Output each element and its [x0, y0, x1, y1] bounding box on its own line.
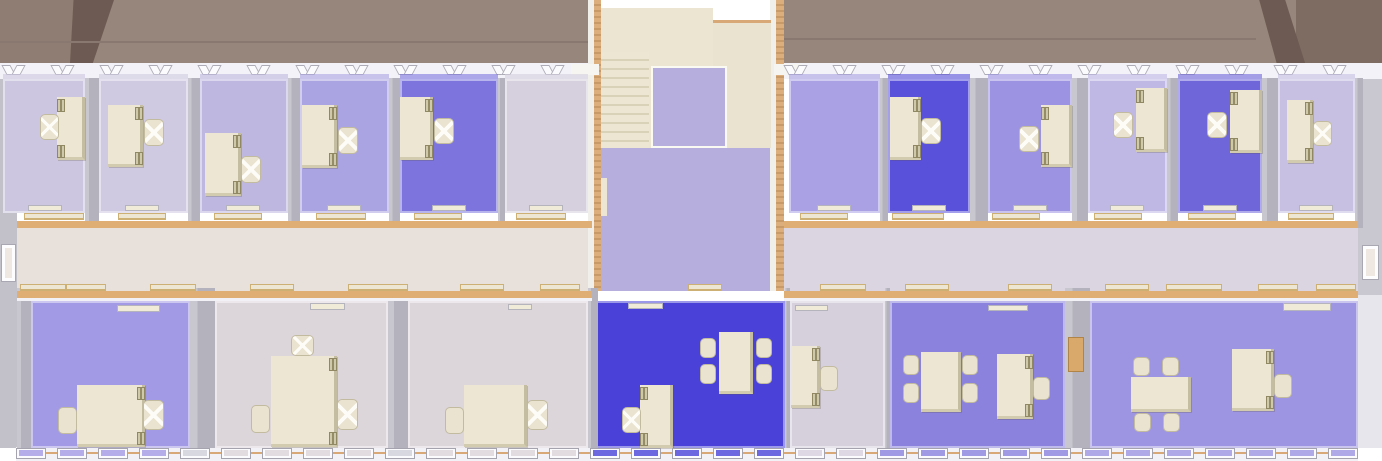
stairwell-door[interactable]: [601, 178, 607, 216]
corridor-south-doors-door-11[interactable]: [1105, 284, 1149, 291]
window-bottom-glass: [306, 450, 330, 456]
top-partition-4: [498, 78, 505, 228]
room-south-6-ceiling-lamp[interactable]: [988, 305, 1028, 311]
office-north-3-equipment-1[interactable]: [233, 135, 241, 148]
window-bottom-glass: [19, 450, 43, 456]
office-north-12-equipment-1[interactable]: [1305, 102, 1313, 115]
room-south-1-table[interactable]: [77, 385, 145, 447]
corridor-north-doors-door-8[interactable]: [992, 213, 1040, 220]
corridor-north-doors-door-0[interactable]: [24, 213, 84, 220]
room-south-5-ceiling-lamp[interactable]: [795, 305, 828, 311]
window-bottom-glass: [1167, 450, 1191, 456]
stair-landing: [601, 148, 770, 291]
window-bottom-glass: [511, 450, 535, 456]
room-south-4-chair-2[interactable]: [700, 364, 716, 384]
office-north-1-equipment-2[interactable]: [57, 145, 65, 158]
bottom-partition-5: [885, 288, 890, 448]
room-office-north-6[interactable]: [505, 79, 588, 213]
floor-plan-canvas: [0, 0, 1382, 461]
window-bottom-glass: [1044, 450, 1068, 456]
stairwell-wall-right-brick: [776, 0, 784, 291]
office-north-6-ceiling-lamp[interactable]: [529, 205, 563, 211]
room-south-3-table[interactable]: [464, 385, 527, 447]
room-south-5-equipment-1[interactable]: [812, 348, 820, 361]
room-south-6-chair-2[interactable]: [903, 383, 919, 403]
corridor-north-doors-door-4[interactable]: [414, 213, 462, 220]
room-south-4-chair-4[interactable]: [756, 364, 772, 384]
corridor-west-floor: [17, 228, 592, 291]
stairwell-wall-left-brick: [594, 0, 601, 291]
window-bottom-glass: [470, 450, 494, 456]
office-north-8-office-chair-1[interactable]: [921, 118, 941, 144]
office-north-4-ceiling-lamp[interactable]: [327, 205, 361, 211]
window-bottom-glass: [265, 450, 289, 456]
corridor-south-doors-base-1: [784, 298, 1358, 301]
room-south-2-ceiling-lamp[interactable]: [310, 303, 345, 310]
office-north-10-equipment-2[interactable]: [1136, 137, 1144, 150]
room-south-6-chair-4[interactable]: [962, 383, 978, 403]
room-south-4-equipment-1[interactable]: [640, 387, 648, 400]
corridor-north-doors-door-6[interactable]: [800, 213, 848, 220]
office-north-7-ceiling-lamp[interactable]: [817, 205, 851, 211]
office-north-11-office-chair-1[interactable]: [1207, 112, 1227, 138]
top-partition-1: [188, 78, 200, 228]
office-north-8-equipment-1[interactable]: [913, 99, 921, 112]
corridor-south-doors-door-13[interactable]: [1258, 284, 1298, 291]
office-north-10-equipment-1[interactable]: [1136, 90, 1144, 103]
window-bottom-glass: [142, 450, 166, 456]
office-north-5-equipment-2[interactable]: [425, 145, 433, 158]
corridor-south-doors-door-3[interactable]: [250, 284, 294, 291]
room-room-south-6[interactable]: [890, 301, 1065, 448]
window-bottom-glass: [1208, 450, 1232, 456]
window-top-glass-office-north-2: [99, 74, 188, 79]
window-bottom-glass: [921, 450, 945, 456]
corridor-south-doors-door-10[interactable]: [1008, 284, 1052, 291]
office-north-4-equipment-2[interactable]: [329, 153, 337, 166]
room-room-south-7[interactable]: [1090, 301, 1358, 448]
office-north-2-ceiling-lamp[interactable]: [125, 205, 159, 211]
room-south-4-chair-3[interactable]: [756, 338, 772, 358]
office-north-4-equipment-1[interactable]: [329, 107, 337, 120]
window-bottom-glass: [880, 450, 904, 456]
stairwell-void: [651, 66, 727, 148]
window-bottom-glass: [347, 450, 371, 456]
corridor-north-doors-door-5[interactable]: [516, 213, 566, 220]
window-bottom-glass: [60, 450, 84, 456]
room-south-1-equipment-2[interactable]: [137, 432, 145, 445]
window-bottom-glass: [1249, 450, 1273, 456]
office-north-2-equipment-2[interactable]: [135, 152, 143, 165]
office-north-10-ceiling-lamp[interactable]: [1110, 205, 1144, 211]
office-north-1-ceiling-lamp[interactable]: [28, 205, 62, 211]
corridor-south-doors-door-4[interactable]: [348, 284, 408, 291]
top-partition-2: [288, 78, 300, 228]
room-south-2-table[interactable]: [271, 356, 337, 447]
window-top-glass-office-north-5: [400, 74, 498, 79]
room-south-6-chair-6[interactable]: [1033, 377, 1050, 400]
office-north-9-ceiling-lamp[interactable]: [1013, 205, 1047, 211]
window-bottom-glass: [716, 450, 740, 456]
corridor-south-doors-base-0: [17, 298, 592, 301]
window-bottom-glass: [593, 450, 617, 456]
corridor-east-floor: [784, 228, 1358, 291]
office-north-9-equipment-1[interactable]: [1041, 107, 1049, 120]
corridor-north-doors-threshold-0: [17, 221, 592, 228]
room-south-7-table[interactable]: [1131, 377, 1191, 412]
room-south-2-chair-1[interactable]: [251, 405, 270, 433]
office-north-5-office-chair-1[interactable]: [434, 118, 454, 144]
office-north-5-equipment-1[interactable]: [425, 99, 433, 112]
roof-left-corner: [0, 0, 74, 63]
roof-right-corner: [1296, 0, 1382, 66]
room-south-7-chair-4[interactable]: [1163, 413, 1180, 432]
window-top-glass-office-north-11: [1178, 74, 1262, 79]
room-south-5-chair-1[interactable]: [820, 366, 838, 391]
top-partition-10: [1355, 78, 1363, 228]
office-north-11-equipment-2[interactable]: [1230, 138, 1238, 151]
window-top-glass-office-north-4: [300, 74, 389, 79]
corridor-north-doors-door-10[interactable]: [1188, 213, 1236, 220]
window-bottom-glass: [962, 450, 986, 456]
corridor-south-doors-door-8[interactable]: [820, 284, 866, 291]
roof-left-ridge: [0, 41, 590, 43]
office-north-3-equipment-2[interactable]: [233, 181, 241, 194]
room-south-4-table[interactable]: [719, 332, 753, 394]
window-bottom-glass: [224, 450, 248, 456]
office-north-2-equipment-1[interactable]: [135, 107, 143, 120]
corridor-south-doors-threshold-0: [17, 291, 592, 298]
window-bottom-glass: [798, 450, 822, 456]
window-bottom-glass: [1126, 450, 1150, 456]
corridor-west-end-window[interactable]: [2, 245, 15, 281]
office-north-9-office-chair-1[interactable]: [1019, 126, 1039, 152]
office-north-4-office-chair-1[interactable]: [338, 127, 358, 154]
room-south-7-chair-1[interactable]: [1133, 357, 1150, 376]
room-south-3-ceiling-lamp[interactable]: [508, 304, 532, 310]
office-north-5-ceiling-lamp[interactable]: [432, 205, 466, 211]
room-south-1-chair-1[interactable]: [58, 407, 77, 434]
bottom-partition-1: [190, 288, 215, 448]
room-office-north-7[interactable]: [789, 79, 880, 213]
window-top-glass-office-north-12: [1278, 74, 1355, 79]
office-north-9-equipment-2[interactable]: [1041, 152, 1049, 165]
bottom-partition-4: [785, 288, 790, 448]
top-partition-3: [389, 78, 400, 228]
room-south-2-office-chair-2[interactable]: [337, 399, 358, 430]
room-south-7-chair-6[interactable]: [1274, 374, 1292, 398]
window-bottom-glass: [1003, 450, 1027, 456]
office-north-11-ceiling-lamp[interactable]: [1203, 205, 1237, 211]
room-south-6-equipment-1[interactable]: [1025, 356, 1033, 369]
corridor-north-doors-door-3[interactable]: [316, 213, 366, 220]
bottom-partition-0: [17, 288, 31, 448]
window-bottom-glass: [429, 450, 453, 456]
corridor-south-doors-door-6[interactable]: [540, 284, 580, 291]
room-south-4-ceiling-lamp[interactable]: [628, 303, 663, 309]
room-south-1-equipment-1[interactable]: [137, 387, 145, 400]
corridor-south-doors-door-2[interactable]: [150, 284, 196, 291]
room-south-1-office-chair-2[interactable]: [143, 400, 164, 430]
room-south-4-office-chair-6[interactable]: [622, 407, 641, 433]
door-south-6-7-divider[interactable]: [1068, 337, 1084, 372]
top-partition-0: [85, 78, 99, 228]
room-south-7-equipment-1[interactable]: [1266, 351, 1274, 364]
window-top-glass-office-north-9: [988, 74, 1072, 79]
office-north-3-office-chair-1[interactable]: [241, 156, 261, 183]
corridor-south-doors-door-12[interactable]: [1166, 284, 1222, 291]
room-south-7-equipment-2[interactable]: [1266, 396, 1274, 409]
window-bottom-glass: [675, 450, 699, 456]
office-north-12-ceiling-lamp[interactable]: [1299, 205, 1333, 211]
window-top-glass-office-north-10: [1088, 74, 1167, 79]
corridor-south-doors-door-9[interactable]: [905, 284, 949, 291]
corridor-south-doors-threshold-1: [784, 291, 1358, 298]
window-top-glass-office-north-1: [3, 74, 85, 79]
window-bottom-glass: [183, 450, 207, 456]
office-north-12-equipment-2[interactable]: [1305, 148, 1313, 161]
window-bottom-glass: [634, 450, 658, 456]
window-bottom-glass: [552, 450, 576, 456]
corridor-south-doors-door-0[interactable]: [20, 284, 66, 291]
window-bottom-glass: [757, 450, 781, 456]
top-partition-9: [1262, 78, 1278, 228]
top-partition-6: [970, 78, 988, 228]
window-top-glass-office-north-3: [200, 74, 288, 79]
top-partition-8: [1167, 78, 1178, 228]
room-south-7-chair-3[interactable]: [1134, 413, 1151, 432]
corridor-east-end-window[interactable]: [1363, 246, 1378, 279]
room-south-6-chair-1[interactable]: [903, 355, 919, 375]
room-south-6-table[interactable]: [921, 352, 961, 412]
room-south-7-chair-2[interactable]: [1162, 357, 1179, 376]
room-south-4-chair-1[interactable]: [700, 338, 716, 358]
top-partition-7: [1072, 78, 1088, 228]
corridor-south-doors-door-7[interactable]: [688, 284, 722, 291]
room-south-3-chair-1[interactable]: [445, 407, 464, 434]
office-north-8-ceiling-lamp[interactable]: [912, 205, 946, 211]
window-bottom-glass: [101, 450, 125, 456]
top-partition-5: [880, 78, 888, 228]
office-north-2-office-chair-1[interactable]: [144, 119, 164, 146]
window-top-glass-office-north-7: [789, 74, 880, 79]
outer-wall-right-lower: [1358, 295, 1382, 448]
window-bottom-glass: [1290, 450, 1314, 456]
corridor-north-doors-door-11[interactable]: [1288, 213, 1334, 220]
bottom-partition-3: [588, 288, 598, 448]
room-south-5-equipment-2[interactable]: [812, 393, 820, 406]
bottom-partition-2: [388, 288, 408, 448]
office-north-12-office-chair-1[interactable]: [1313, 121, 1332, 146]
window-bottom-glass: [1085, 450, 1109, 456]
corridor-north-doors-threshold-1: [784, 221, 1358, 228]
window-bottom-glass: [839, 450, 863, 456]
room-south-6-chair-3[interactable]: [962, 355, 978, 375]
corridor-south-doors-door-5[interactable]: [460, 284, 504, 291]
room-south-3-office-chair-2[interactable]: [527, 400, 548, 430]
stair-flight: [601, 52, 649, 148]
window-bottom-glass: [388, 450, 412, 456]
window-top-glass-office-north-8: [888, 74, 970, 79]
office-north-10-office-chair-1[interactable]: [1113, 112, 1133, 138]
stairwell-right-top-edge: [713, 20, 771, 23]
room-south-1-ceiling-lamp[interactable]: [117, 305, 160, 312]
room-south-2-equipment-2[interactable]: [329, 432, 337, 445]
office-north-1-equipment-1[interactable]: [57, 99, 65, 112]
office-north-8-equipment-2[interactable]: [913, 145, 921, 158]
window-bottom-glass: [1331, 450, 1355, 456]
room-south-4-equipment-2[interactable]: [640, 433, 648, 446]
window-top-glass-office-north-6: [505, 74, 588, 79]
room-south-2-office-chair-3[interactable]: [291, 335, 314, 356]
roof-right-ridge: [780, 38, 1256, 40]
office-north-11-equipment-1[interactable]: [1230, 92, 1238, 105]
corridor-north-doors-door-2[interactable]: [214, 213, 262, 220]
office-north-1-office-chair-1[interactable]: [40, 114, 59, 140]
room-south-6-equipment-2[interactable]: [1025, 404, 1033, 417]
corridor-north-doors-door-9[interactable]: [1094, 213, 1142, 220]
corridor-north-doors-door-7[interactable]: [892, 213, 944, 220]
corridor-south-doors-door-1[interactable]: [66, 284, 106, 291]
corridor-north-doors-door-1[interactable]: [118, 213, 166, 220]
room-south-2-equipment-1[interactable]: [329, 358, 337, 371]
office-north-3-ceiling-lamp[interactable]: [226, 205, 260, 211]
room-south-7-ceiling-lamp[interactable]: [1283, 303, 1331, 311]
corridor-south-doors-door-14[interactable]: [1316, 284, 1356, 291]
